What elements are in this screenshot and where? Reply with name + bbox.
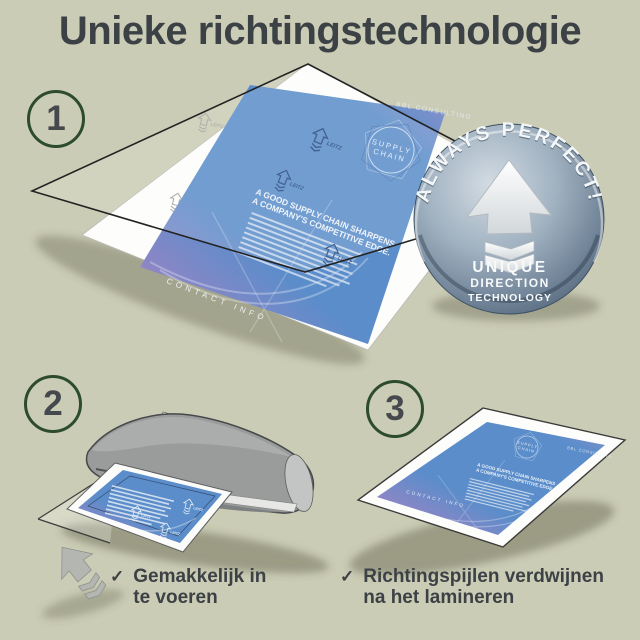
checklist-text: Gemakkelijk in te voeren — [133, 566, 266, 608]
svg-text:UNIQUE: UNIQUE — [472, 259, 547, 276]
checkmark-icon: ✓ — [340, 566, 354, 608]
checklist-item-easy-feed: ✓ Gemakkelijk in te voeren — [110, 566, 266, 608]
step-2-number: 2 — [24, 375, 82, 433]
badge-caption: UNIQUE DIRECTION TECHNOLOGY — [468, 259, 552, 304]
step-3-number: 3 — [366, 380, 424, 438]
svg-text:DIRECTION: DIRECTION — [470, 276, 550, 290]
laminating-infographic: Unieke richtingstechnologie — [0, 0, 640, 640]
checklist-item-arrows-disappear: ✓ Richtingspijlen verdwijnen na het lami… — [340, 566, 604, 608]
step-1-number: 1 — [27, 90, 85, 148]
checklist-text: Richtingspijlen verdwijnen na het lamine… — [363, 566, 604, 608]
illustration-svg: LEITZ — [0, 0, 640, 640]
svg-text:TECHNOLOGY: TECHNOLOGY — [468, 292, 552, 304]
checkmark-icon: ✓ — [110, 566, 124, 608]
